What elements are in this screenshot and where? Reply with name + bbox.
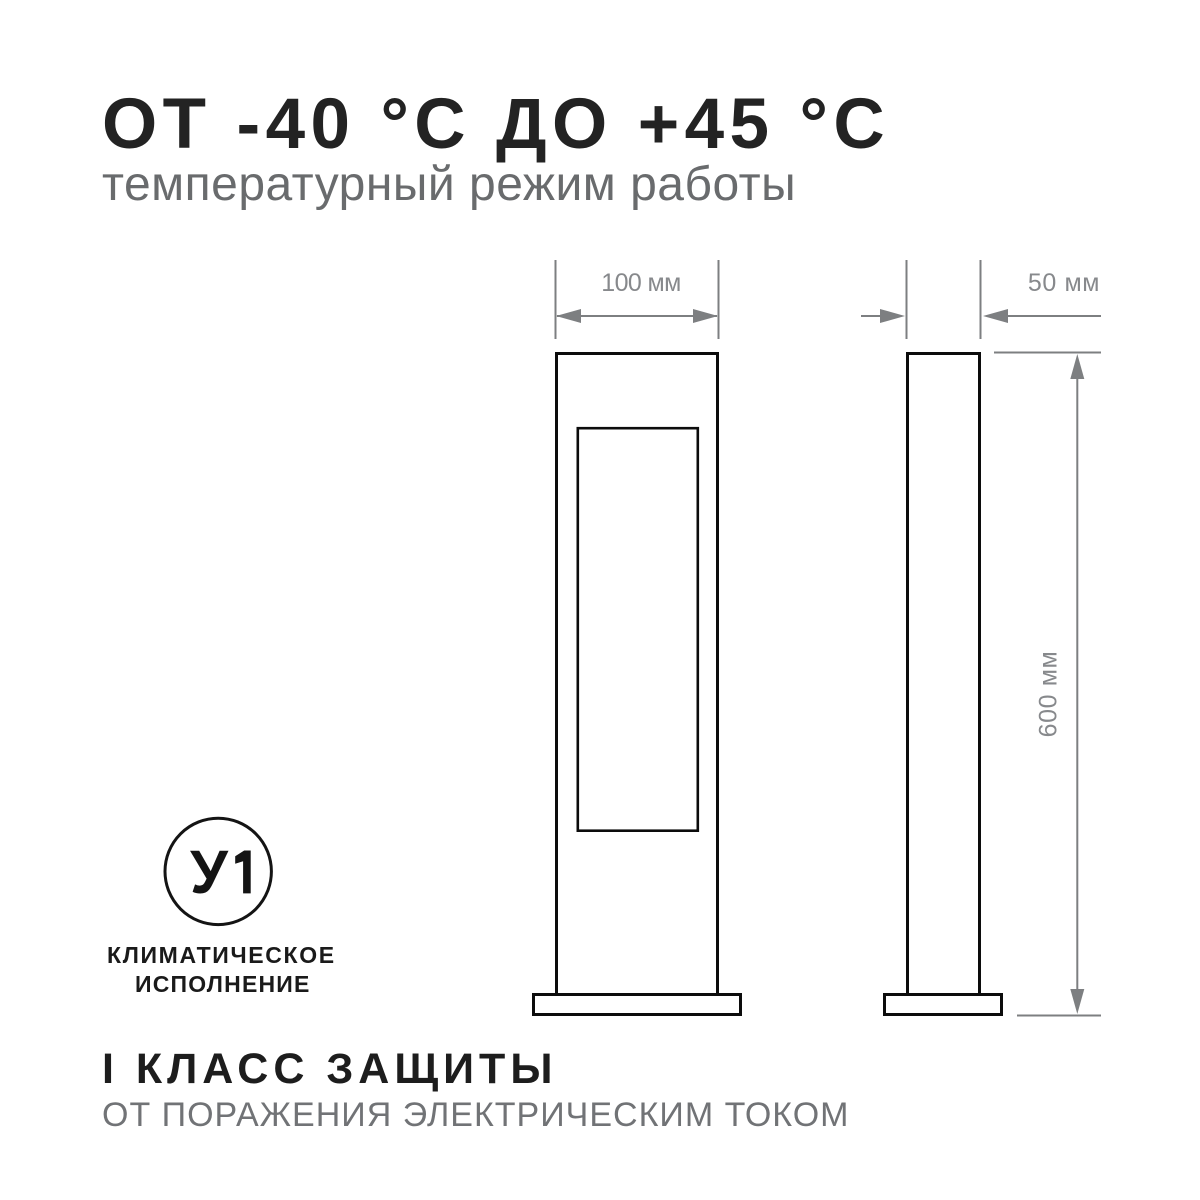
svg-text:100 мм: 100 мм bbox=[601, 269, 680, 297]
svg-text:50 мм: 50 мм bbox=[1028, 269, 1100, 297]
